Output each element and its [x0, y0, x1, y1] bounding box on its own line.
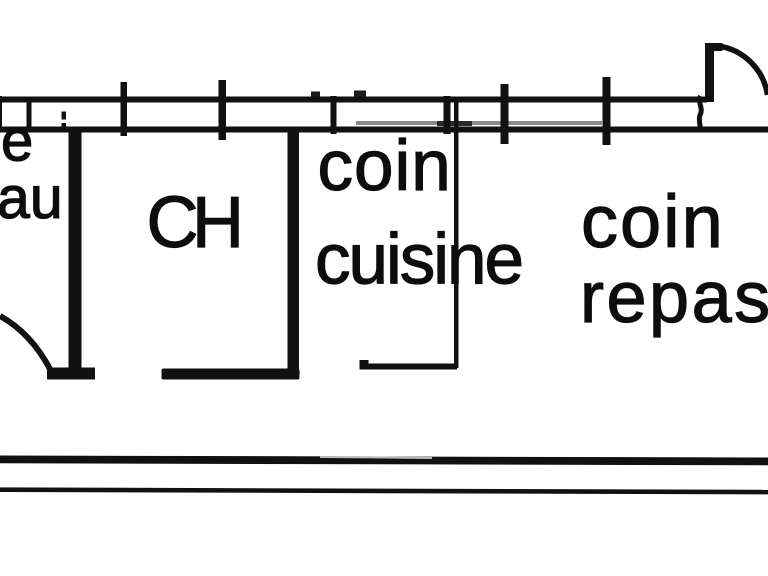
svg-text:coin: coin — [318, 127, 452, 206]
svg-text:CH: CH — [147, 183, 239, 263]
svg-text:coin: coin — [581, 180, 725, 263]
svg-text:e: e — [1, 109, 33, 174]
svg-text:cuisine: cuisine — [315, 221, 522, 300]
svg-text:repas: repas — [580, 258, 768, 338]
svg-text:au: au — [0, 165, 63, 231]
